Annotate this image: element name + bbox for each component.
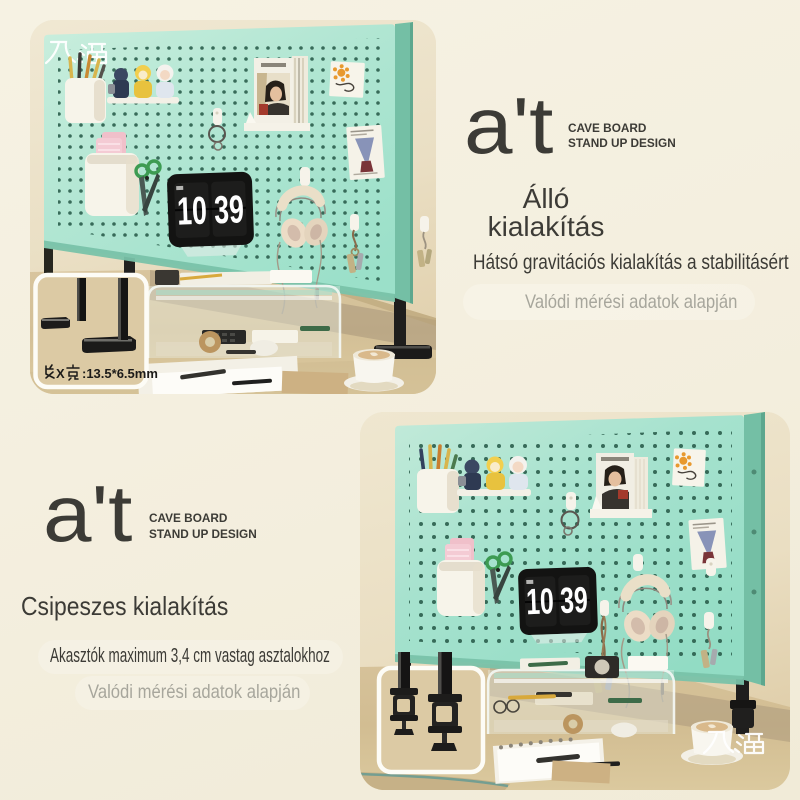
svg-text:39: 39 (559, 579, 588, 621)
svg-text:10: 10 (176, 190, 207, 234)
svg-text:X: X (56, 366, 65, 381)
svg-text:10: 10 (525, 581, 554, 623)
svg-text:39: 39 (213, 188, 244, 232)
svg-text::13.5*6.5mm: :13.5*6.5mm (82, 366, 158, 381)
